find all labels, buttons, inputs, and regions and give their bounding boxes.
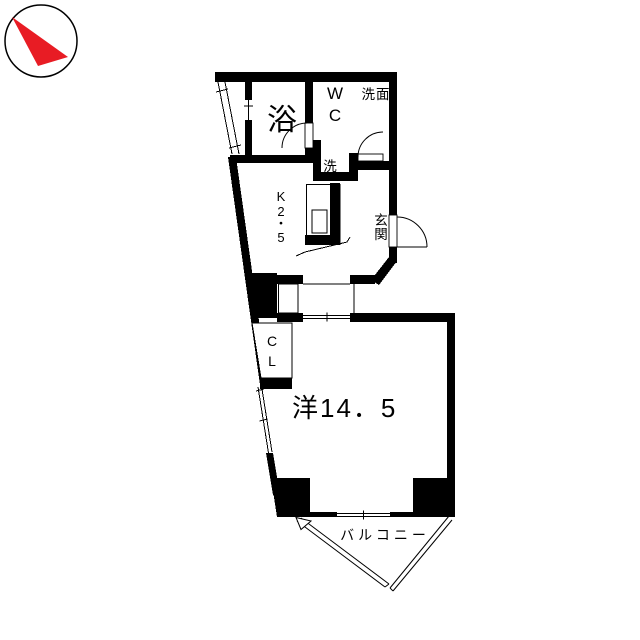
wall-segment [305,82,313,123]
wall-segment [310,512,337,517]
wall-segment [350,313,455,322]
wall-segment [277,275,303,284]
window-line [218,82,232,154]
kitchen-sink [312,210,327,233]
north-indicator [5,5,77,77]
washroom-door-swing-arc [358,132,383,157]
closet-label-c: C [267,333,277,349]
wall-segment [245,120,252,157]
toilet-label-w: W [327,84,343,103]
balcony-label: バルコニー [340,527,430,543]
north-arrow-icon [12,17,68,66]
entrance-door-leaf [389,215,397,247]
wall-segment [350,275,375,284]
entrance-door-swing-arc [397,217,427,247]
wall-segment [230,155,313,163]
doors [282,123,427,247]
floor-plan-drawing: 浴 W C 洗面 洗 K 2 ・ 5 玄 関 C L 洋14．5 バルコニー [0,0,640,640]
toilet-label-c: C [329,106,341,125]
diagonal-wall [266,453,280,495]
kitchen-label-k: K [277,189,286,204]
wall-segment [245,82,252,100]
wall-recess-outline [279,284,299,313]
kitchen-label-5: 5 [277,230,284,245]
wall-segment [357,161,389,170]
wall-segment [349,153,358,181]
window-line [225,82,239,154]
closet-label-l: L [268,353,276,369]
entrance-label-1: 玄 [374,212,388,228]
wall-segment [413,478,455,517]
kitchen-label-dot: ・ [274,216,287,231]
wall-segment [305,148,313,163]
walls [215,72,455,517]
entrance-label-2: 関 [374,227,388,242]
western-room-label: 洋14．5 [292,393,397,423]
windows [216,82,390,520]
wall-segment [277,313,303,322]
laundry-label: 洗 [323,159,337,174]
wall-segment [215,72,397,82]
balcony-rail-cap [385,584,389,587]
washroom-door-leaf [358,154,383,161]
kitchen-counter-wall [305,235,340,245]
bath-door-leaf [305,123,313,148]
wall-segment [390,512,413,517]
bath-label: 浴 [267,104,297,137]
balcony-rail-cap [390,588,393,591]
window-tick [256,389,264,391]
floor-plan: 浴 W C 洗面 洗 K 2 ・ 5 玄 関 C L 洋14．5 バルコニー [0,0,640,640]
washbasin-label: 洗面 [362,87,391,102]
balcony-drain-arrow-icon [296,518,311,530]
